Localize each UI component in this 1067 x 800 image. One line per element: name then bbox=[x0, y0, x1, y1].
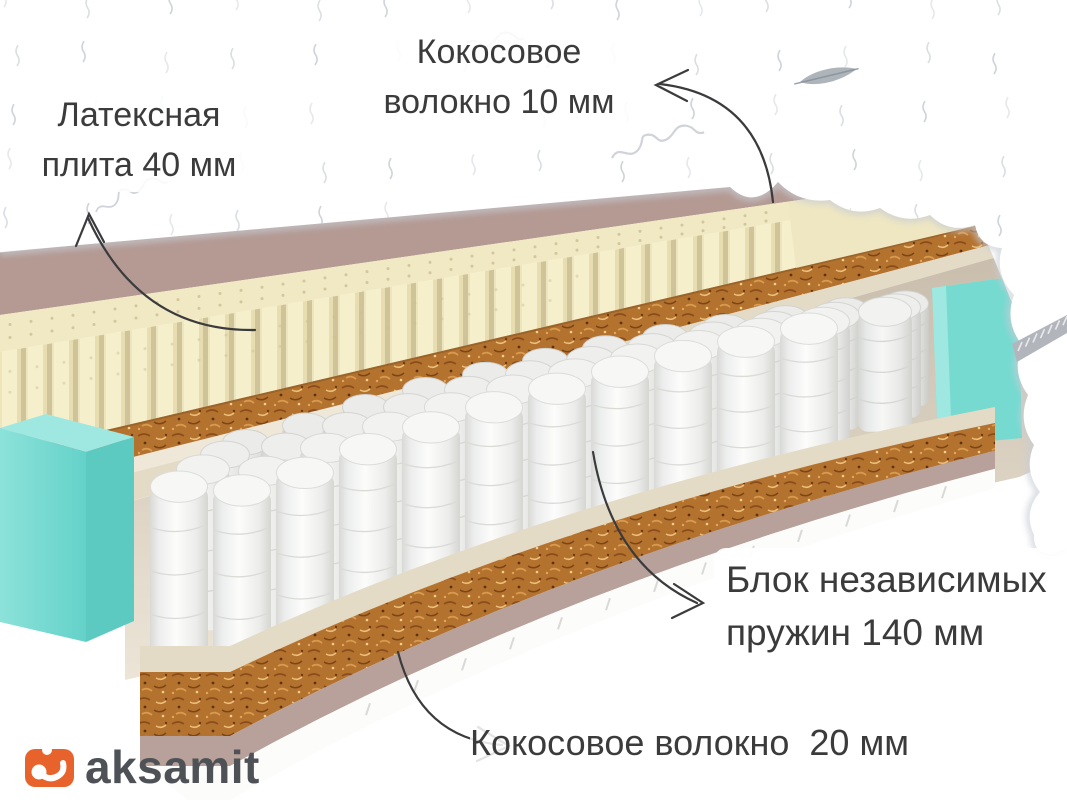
latex-perforation bbox=[513, 248, 516, 251]
latex-perforation bbox=[408, 264, 411, 267]
latex-perforation bbox=[441, 317, 444, 320]
spring-pocket-top bbox=[403, 412, 460, 443]
latex-perforation bbox=[30, 333, 33, 336]
latex-perforation bbox=[618, 233, 621, 236]
latex-perforation bbox=[72, 326, 75, 329]
latex-perforation bbox=[723, 217, 726, 220]
latex-perforation bbox=[240, 289, 243, 292]
latex-perforation bbox=[660, 227, 663, 230]
latex-perforation bbox=[765, 211, 768, 214]
spring-pocket-top bbox=[214, 475, 271, 506]
latex-perforation bbox=[618, 242, 621, 245]
latex-perforation bbox=[9, 391, 12, 394]
latex-perforation bbox=[279, 324, 282, 327]
label-line: пружин 140 мм bbox=[726, 606, 1067, 659]
spring-pocket-top bbox=[655, 340, 712, 371]
latex-perforation bbox=[135, 317, 138, 320]
latex-perforation bbox=[219, 304, 222, 307]
latex-perforation bbox=[171, 363, 174, 366]
latex-perforation bbox=[492, 252, 495, 255]
latex-perforation bbox=[72, 314, 75, 317]
latex-perforation bbox=[576, 249, 579, 252]
latex-perforation bbox=[723, 226, 726, 229]
latex-perforation bbox=[471, 265, 474, 268]
spring-pocket-top bbox=[718, 326, 775, 357]
latex-perforation bbox=[576, 275, 579, 278]
spring-pocket-top bbox=[592, 356, 649, 387]
latex-perforation bbox=[90, 377, 93, 380]
latex-perforation bbox=[429, 261, 432, 264]
latex-perforation bbox=[198, 295, 201, 298]
latex-perforation bbox=[324, 287, 327, 290]
latex-perforation bbox=[9, 336, 12, 339]
label-line: Латексная bbox=[22, 90, 256, 140]
latex-perforation bbox=[681, 232, 684, 235]
brand-logo: aksamit bbox=[24, 740, 260, 794]
latex-perforation bbox=[303, 291, 306, 294]
latex-perforation bbox=[93, 323, 96, 326]
latex-perforation bbox=[225, 354, 228, 357]
latex-perforation bbox=[333, 315, 336, 318]
latex-perforation bbox=[177, 310, 180, 313]
spring-pocket-top bbox=[340, 434, 397, 465]
cutaway-layers bbox=[0, 150, 1050, 800]
label-line: Кокосовое bbox=[348, 27, 650, 77]
latex-perforation bbox=[306, 320, 309, 323]
spring-pocket-top bbox=[859, 297, 912, 326]
label-latex-plate: Латексная плита 40 мм bbox=[22, 88, 256, 192]
latex-perforation bbox=[9, 370, 12, 373]
latex-perforation bbox=[468, 313, 471, 316]
quilt-stitch bbox=[921, 528, 932, 549]
logo-text: aksamit bbox=[85, 740, 260, 794]
latex-perforation bbox=[702, 220, 705, 223]
latex-perforation bbox=[429, 271, 432, 274]
latex-perforation bbox=[51, 317, 54, 320]
latex-perforation bbox=[495, 308, 498, 311]
latex-perforation bbox=[333, 336, 336, 339]
latex-perforation bbox=[471, 255, 474, 258]
latex-perforation bbox=[36, 365, 39, 368]
latex-perforation bbox=[744, 214, 747, 217]
latex-perforation bbox=[198, 359, 201, 362]
latex-perforation bbox=[345, 273, 348, 276]
latex-perforation bbox=[114, 307, 117, 310]
latex-perforation bbox=[30, 320, 33, 323]
latex-perforation bbox=[345, 284, 348, 287]
latex-perforation bbox=[279, 345, 282, 348]
latex-perforation bbox=[639, 239, 642, 242]
latex-perforation bbox=[522, 284, 525, 287]
label-line: Блок независимых bbox=[726, 553, 1067, 606]
latex-perforation bbox=[198, 338, 201, 341]
latex-perforation bbox=[306, 340, 309, 343]
side-foam-left-side bbox=[86, 437, 134, 642]
latex-perforation bbox=[744, 223, 747, 226]
latex-perforation bbox=[324, 276, 327, 279]
latex-perforation bbox=[387, 278, 390, 281]
latex-perforation bbox=[135, 304, 138, 307]
label-line: плита 40 мм bbox=[22, 140, 256, 190]
latex-perforation bbox=[441, 297, 444, 300]
latex-perforation bbox=[117, 352, 120, 355]
label-coconut-top: Кокосовое волокно 10 мм bbox=[348, 26, 650, 128]
latex-perforation bbox=[282, 283, 285, 286]
latex-perforation bbox=[387, 267, 390, 270]
latex-perforation bbox=[765, 220, 768, 223]
latex-perforation bbox=[177, 298, 180, 301]
side-foam-left bbox=[0, 414, 134, 642]
latex-perforation bbox=[93, 311, 96, 314]
label-coconut-bottom: Кокосовое волокно 20 мм bbox=[470, 714, 1036, 772]
latex-perforation bbox=[225, 334, 228, 337]
latex-perforation bbox=[555, 242, 558, 245]
latex-perforation bbox=[408, 275, 411, 278]
latex-perforation bbox=[597, 236, 600, 239]
latex-perforation bbox=[468, 293, 471, 296]
mattress-cutaway-illustration: Латексная плита 40 мм Кокосовое волокно … bbox=[0, 0, 1067, 800]
latex-perforation bbox=[198, 307, 201, 310]
latex-perforation bbox=[144, 368, 147, 371]
latex-perforation bbox=[36, 386, 39, 389]
latex-perforation bbox=[63, 361, 66, 364]
latex-perforation bbox=[513, 258, 516, 261]
latex-perforation bbox=[534, 245, 537, 248]
latex-perforation bbox=[495, 288, 498, 291]
latex-perforation bbox=[366, 270, 369, 273]
spring-pocket-top bbox=[277, 457, 334, 488]
latex-perforation bbox=[219, 292, 222, 295]
latex-perforation bbox=[450, 268, 453, 271]
spring-pocket-top bbox=[781, 313, 838, 344]
latex-perforation bbox=[117, 372, 120, 375]
latex-perforation bbox=[660, 236, 663, 239]
spring-pocket-top bbox=[466, 392, 523, 423]
label-line: Кокосовое волокно 20 мм bbox=[470, 718, 1036, 768]
latex-perforation bbox=[702, 229, 705, 232]
latex-perforation bbox=[534, 255, 537, 258]
latex-perforation bbox=[387, 306, 390, 309]
latex-perforation bbox=[555, 252, 558, 255]
latex-perforation bbox=[9, 323, 12, 326]
latex-perforation bbox=[171, 343, 174, 346]
latex-perforation bbox=[360, 311, 363, 314]
latex-perforation bbox=[576, 239, 579, 242]
latex-perforation bbox=[261, 297, 264, 300]
latex-perforation bbox=[282, 294, 285, 297]
side-foam-left-front bbox=[0, 428, 86, 642]
latex-perforation bbox=[144, 347, 147, 350]
latex-perforation bbox=[492, 262, 495, 265]
latex-perforation bbox=[51, 329, 54, 332]
latex-perforation bbox=[639, 230, 642, 233]
latex-perforation bbox=[414, 322, 417, 325]
latex-perforation bbox=[414, 302, 417, 305]
latex-perforation bbox=[90, 356, 93, 359]
latex-perforation bbox=[252, 349, 255, 352]
logo-mark-icon bbox=[24, 744, 76, 790]
latex-perforation bbox=[366, 281, 369, 284]
latex-perforation bbox=[114, 320, 117, 323]
latex-perforation bbox=[549, 299, 552, 302]
label-line: волокно 10 мм bbox=[348, 77, 650, 127]
spring-pocket-top bbox=[529, 373, 586, 404]
latex-perforation bbox=[63, 382, 66, 385]
latex-perforation bbox=[156, 313, 159, 316]
latex-perforation bbox=[522, 304, 525, 307]
latex-perforation bbox=[450, 258, 453, 261]
latex-perforation bbox=[303, 280, 306, 283]
latex-perforation bbox=[261, 286, 264, 289]
latex-perforation bbox=[387, 327, 390, 330]
latex-perforation bbox=[360, 331, 363, 334]
latex-perforation bbox=[681, 224, 684, 227]
latex-perforation bbox=[597, 245, 600, 248]
latex-perforation bbox=[549, 279, 552, 282]
latex-perforation bbox=[240, 300, 243, 303]
label-spring-block: Блок независимых пружин 140 мм bbox=[714, 548, 1067, 664]
spring-pocket-top bbox=[151, 471, 208, 502]
